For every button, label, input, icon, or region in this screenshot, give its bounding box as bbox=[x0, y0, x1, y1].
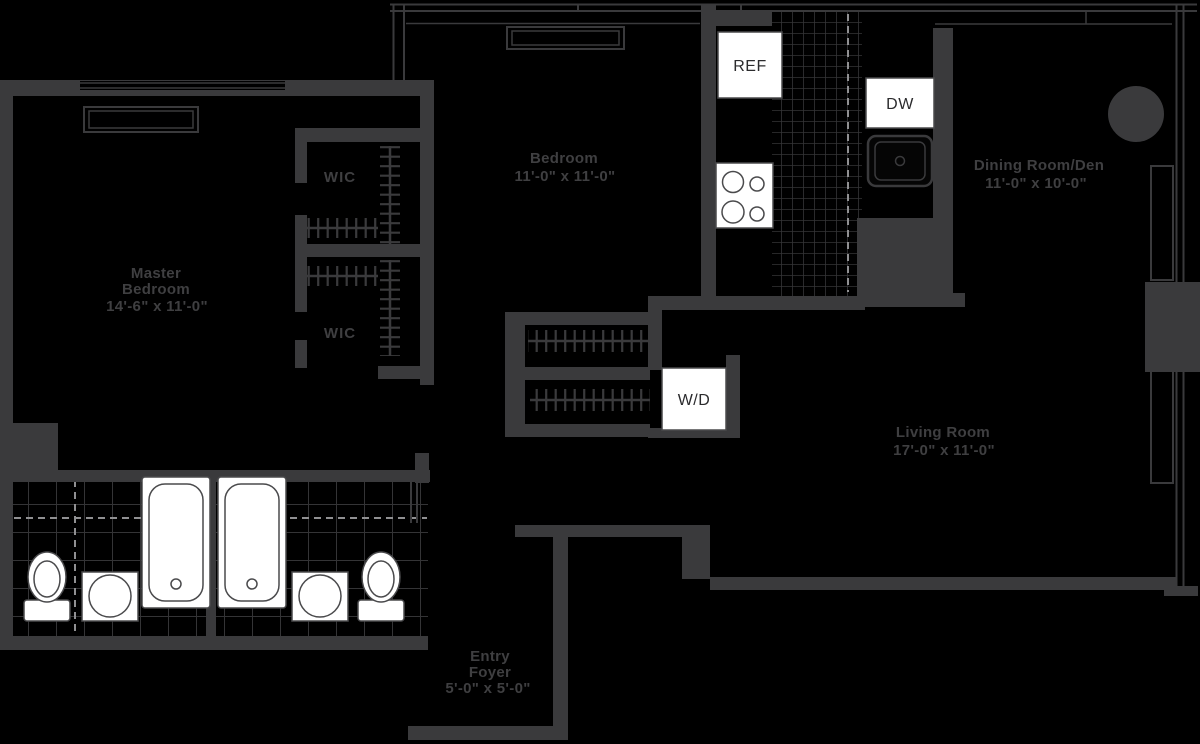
hall-south-wall bbox=[515, 525, 710, 537]
four-burner-stove bbox=[716, 163, 773, 228]
wic-divider-wall bbox=[295, 244, 434, 257]
bathroom-south-wall bbox=[0, 636, 428, 650]
entry-foyer-dimensions: 5'-0" x 5'-0" bbox=[445, 680, 530, 697]
left-exterior-wall bbox=[0, 80, 13, 636]
closet-divider-wall bbox=[515, 367, 650, 380]
washer-dryer: W/D bbox=[662, 368, 726, 430]
closet-top-wall bbox=[505, 312, 655, 325]
kitchen-sink bbox=[868, 136, 932, 186]
wic-top-wall bbox=[295, 128, 434, 142]
kitchen-east-wall bbox=[933, 28, 953, 296]
master-bedroom-label-line2: Bedroom bbox=[122, 281, 190, 298]
foyer-right-wall bbox=[553, 525, 568, 740]
wd-left-wall bbox=[648, 310, 662, 370]
washer-dryer-label: W/D bbox=[678, 392, 711, 409]
kitchen-se-pier bbox=[857, 218, 935, 296]
wd-right-wall bbox=[726, 355, 740, 437]
bedroom-dimensions: 11'-0" x 11'-0" bbox=[515, 168, 616, 185]
wic-upper-left-wall-2 bbox=[295, 215, 307, 244]
foyer-bottom-wall bbox=[408, 726, 568, 740]
dining-room-den-dimensions: 11'-0" x 10'-0" bbox=[985, 175, 1087, 192]
kitchen-north-wall bbox=[716, 12, 772, 26]
east-wall-cap bbox=[1164, 586, 1198, 596]
floor-plan-page: REF DW W/D bbox=[0, 0, 1200, 744]
living-room-label: Living Room bbox=[896, 424, 990, 441]
dining-room-den-label: Dining Room/Den bbox=[974, 157, 1104, 174]
closet-bottom-wall bbox=[515, 424, 650, 437]
vanity-sink-right bbox=[292, 572, 348, 621]
entry-foyer-label-line2: Foyer bbox=[469, 664, 511, 681]
vanity-sink-left bbox=[82, 572, 138, 621]
living-step-wall bbox=[682, 537, 710, 579]
master-bedroom-label-line1: Master bbox=[131, 265, 181, 282]
floor-plan: REF DW W/D bbox=[0, 0, 1200, 744]
kitchen-west-wall bbox=[701, 5, 716, 310]
wic-bottom-wall bbox=[378, 366, 434, 379]
wic-lower-left-wall bbox=[295, 257, 307, 312]
entry-foyer-label-line1: Entry bbox=[470, 648, 510, 665]
left-pier bbox=[0, 423, 58, 482]
living-room-dimensions: 17'-0" x 11'-0" bbox=[893, 442, 995, 459]
kitchen-south-wall bbox=[648, 296, 865, 310]
toilet-left bbox=[24, 552, 70, 621]
east-wall-pier bbox=[1145, 282, 1200, 372]
bathtub-right bbox=[218, 477, 286, 608]
kitchen-tile-floor bbox=[772, 12, 862, 296]
living-bottom-wall bbox=[710, 577, 1176, 590]
wic-upper-left-wall bbox=[295, 128, 307, 183]
wic-upper-label: WIC bbox=[324, 169, 356, 186]
refrigerator-label: REF bbox=[733, 58, 767, 75]
master-door-pier bbox=[415, 453, 429, 483]
master-bedroom-dimensions: 14'-6" x 11'-0" bbox=[106, 298, 208, 315]
structural-column bbox=[1108, 86, 1164, 142]
dishwasher-label: DW bbox=[886, 96, 914, 113]
toilet-right bbox=[358, 552, 404, 621]
wic-lower-label: WIC bbox=[324, 325, 356, 342]
bathtub-left bbox=[142, 477, 210, 608]
bedroom-label: Bedroom bbox=[530, 150, 598, 167]
wic-lower-left-wall-2 bbox=[295, 340, 307, 368]
